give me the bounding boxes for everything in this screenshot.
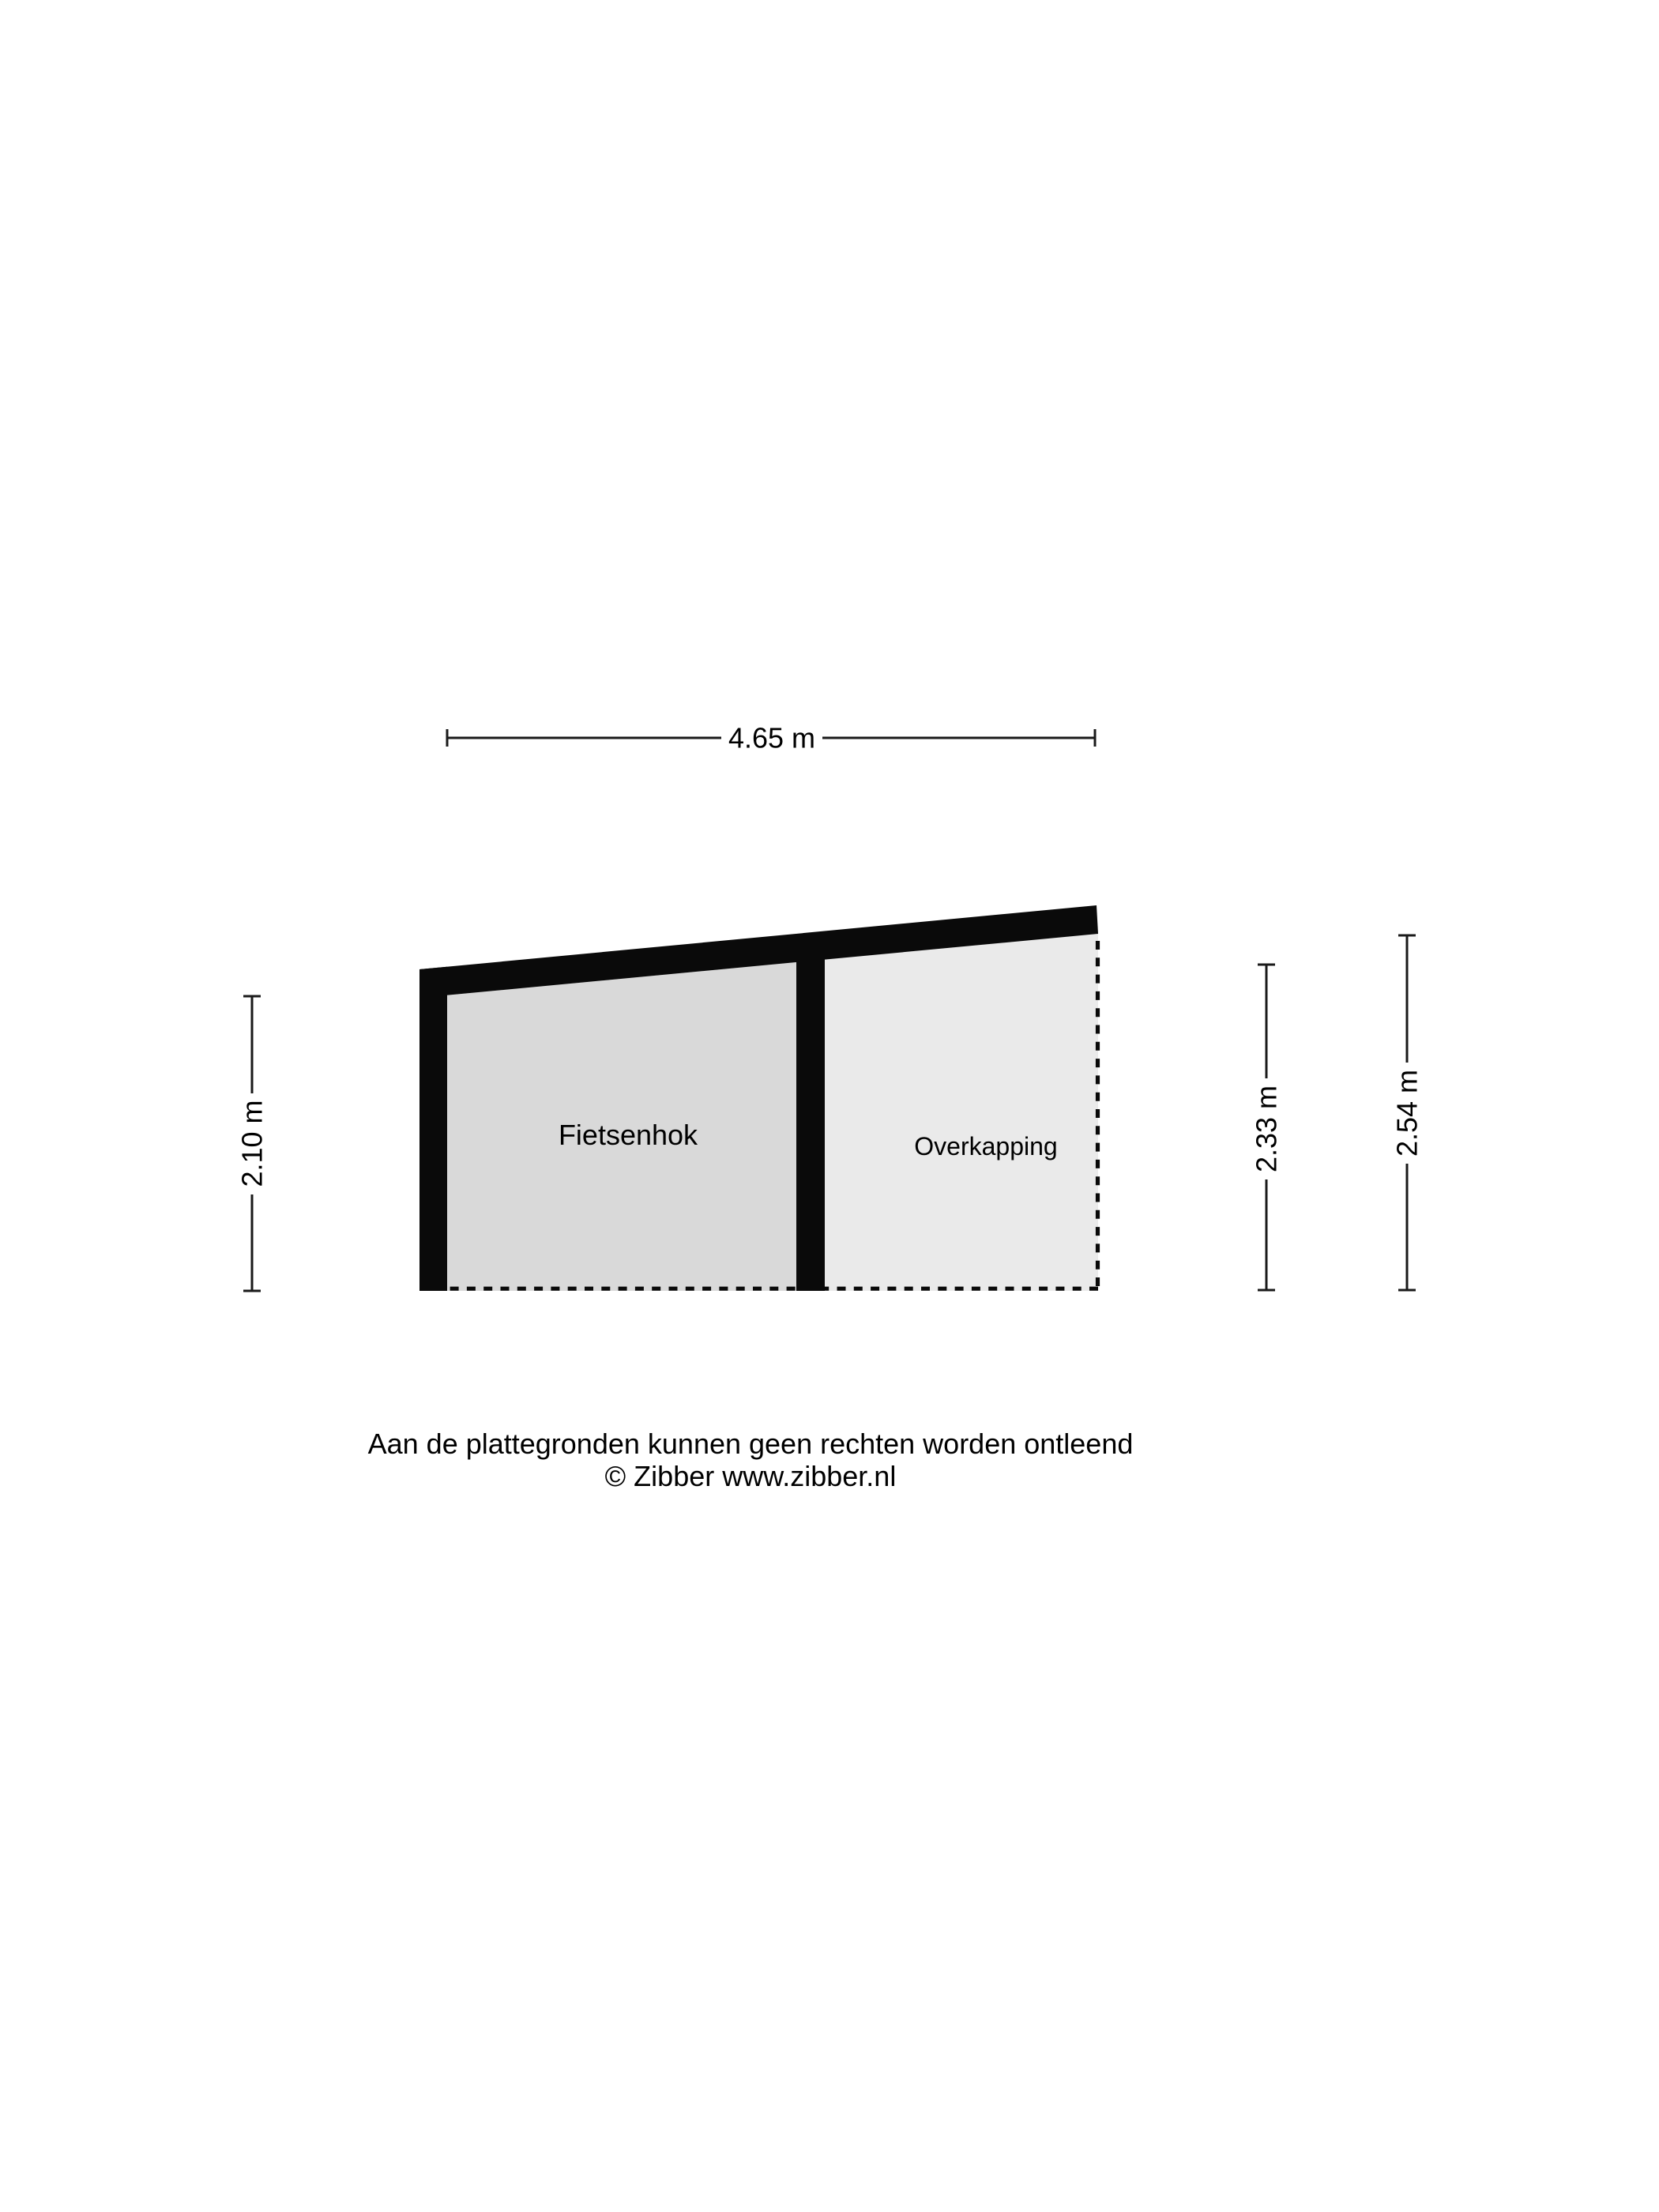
svg-text:2.33 m: 2.33 m [1251,1085,1283,1172]
svg-text:Overkapping: Overkapping [914,1132,1057,1161]
svg-text:2.54 m: 2.54 m [1391,1070,1424,1157]
svg-text:Aan de plattegronden kunnen ge: Aan de plattegronden kunnen geen rechten… [368,1428,1134,1460]
svg-text:4.65 m: 4.65 m [728,722,815,754]
svg-text:Fietsenhok: Fietsenhok [559,1119,698,1151]
svg-text:© Zibber www.zibber.nl: © Zibber www.zibber.nl [605,1460,897,1492]
svg-text:2.10 m: 2.10 m [236,1100,269,1187]
